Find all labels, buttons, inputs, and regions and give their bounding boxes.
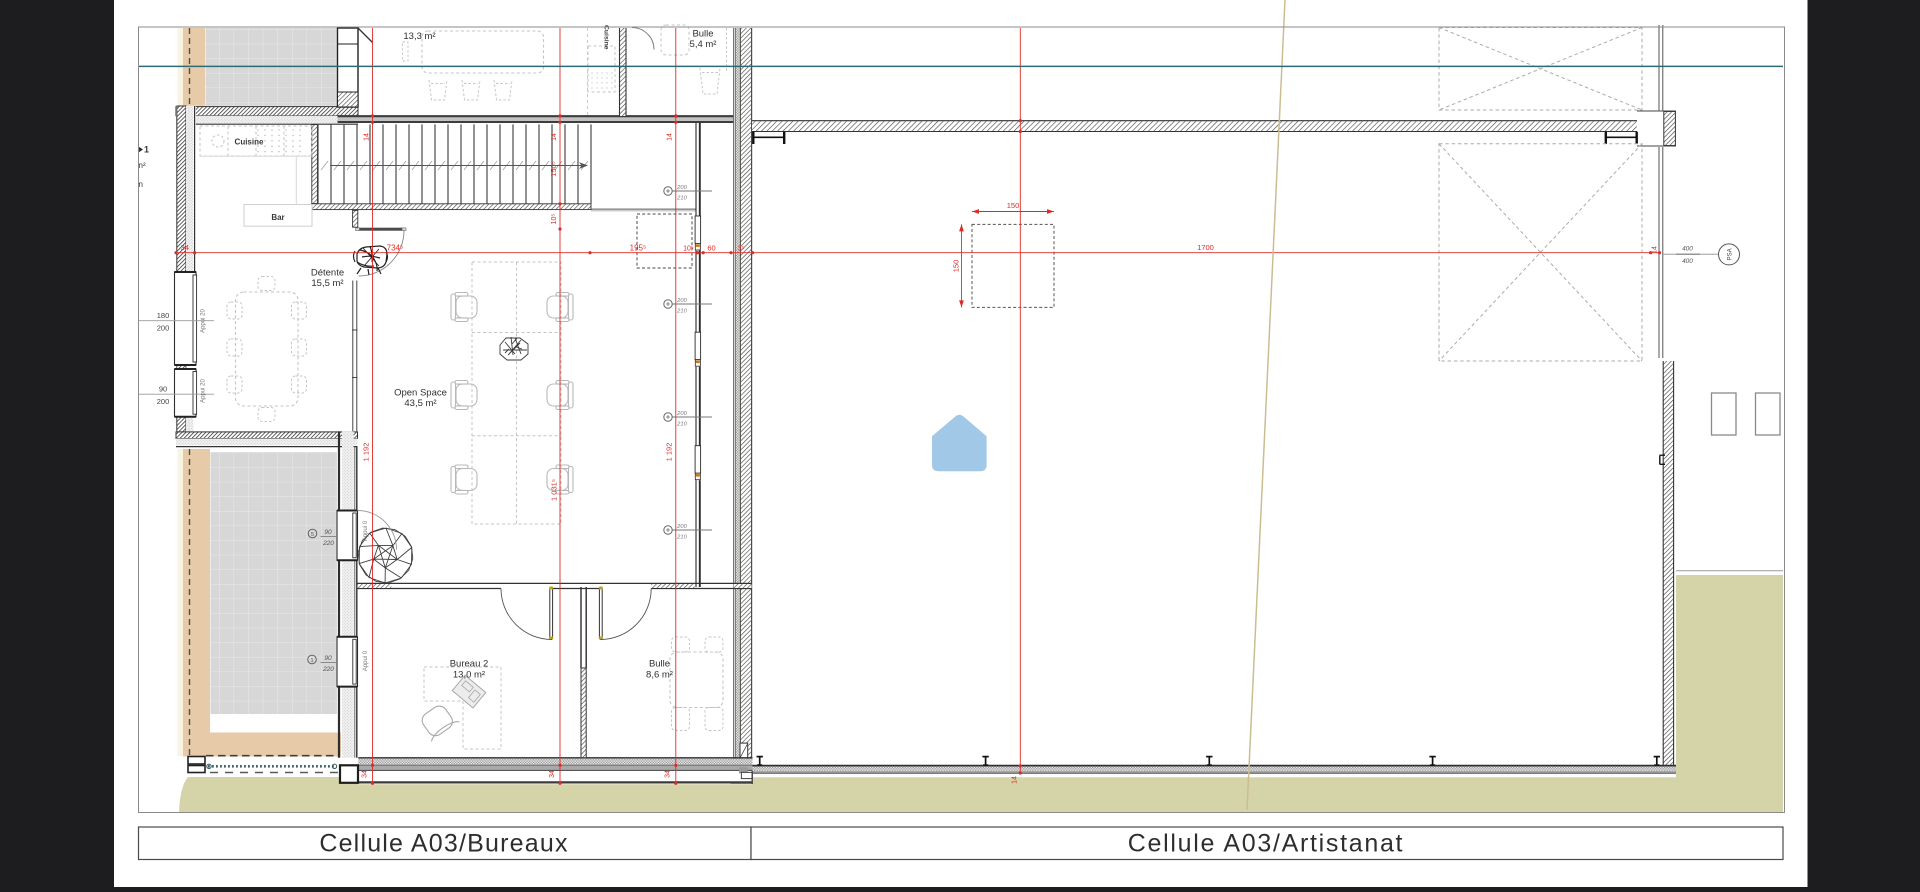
svg-text:n²: n² <box>139 161 146 170</box>
svg-text:34: 34 <box>665 770 672 778</box>
svg-text:Appui 20: Appui 20 <box>201 308 207 332</box>
svg-text:13,0 m²: 13,0 m² <box>453 670 485 681</box>
svg-text:200: 200 <box>676 298 687 304</box>
svg-text:734⁵: 734⁵ <box>387 244 404 253</box>
svg-text:400: 400 <box>1682 258 1693 265</box>
svg-text:1 192: 1 192 <box>362 443 371 462</box>
svg-text:14: 14 <box>1011 776 1018 784</box>
svg-text:1 031⁵: 1 031⁵ <box>550 479 559 501</box>
svg-text:400: 400 <box>1682 246 1693 253</box>
svg-text:220: 220 <box>322 540 334 547</box>
svg-text:200: 200 <box>157 397 170 406</box>
svg-text:Cellule A03/Bureaux: Cellule A03/Bureaux <box>319 830 568 858</box>
svg-text:195⁵: 195⁵ <box>630 244 647 253</box>
svg-text:Cellule A03/Artistanat: Cellule A03/Artistanat <box>1128 830 1404 858</box>
svg-text:5,4 m²: 5,4 m² <box>690 39 717 50</box>
svg-text:15,5 m²: 15,5 m² <box>311 278 343 289</box>
svg-text:34: 34 <box>549 770 556 778</box>
svg-text:34: 34 <box>181 243 189 252</box>
svg-text:14: 14 <box>667 133 674 141</box>
svg-text:3⁵: 3⁵ <box>738 246 745 253</box>
svg-text:150: 150 <box>952 260 961 273</box>
svg-text:1: 1 <box>310 658 313 664</box>
svg-text:90: 90 <box>324 529 332 536</box>
svg-text:Cuisine: Cuisine <box>603 25 610 50</box>
svg-text:200: 200 <box>676 185 687 191</box>
svg-text:8,6 m²: 8,6 m² <box>646 670 673 681</box>
svg-text:43,5 m²: 43,5 m² <box>404 398 436 409</box>
svg-text:13,3 m²: 13,3 m² <box>403 31 435 42</box>
svg-text:Détente: Détente <box>311 268 344 279</box>
svg-text:210: 210 <box>676 309 687 315</box>
svg-text:1: 1 <box>144 145 149 155</box>
svg-text:14: 14 <box>1652 246 1659 254</box>
svg-text:210: 210 <box>676 196 687 202</box>
svg-text:Cuisine: Cuisine <box>235 138 264 147</box>
svg-text:90: 90 <box>324 655 332 662</box>
svg-text:150: 150 <box>1007 201 1020 210</box>
svg-text:90: 90 <box>159 385 167 394</box>
svg-text:Bureau 2: Bureau 2 <box>450 659 489 670</box>
svg-text:Open Space: Open Space <box>394 388 447 399</box>
svg-text:210: 210 <box>676 535 687 541</box>
svg-text:5: 5 <box>311 532 314 538</box>
svg-text:200: 200 <box>157 324 170 333</box>
svg-text:Bulle: Bulle <box>692 29 713 40</box>
svg-text:n: n <box>139 180 143 189</box>
svg-text:Appui 0: Appui 0 <box>363 520 369 541</box>
svg-text:1700: 1700 <box>1197 243 1214 252</box>
svg-text:150⁵: 150⁵ <box>549 161 558 177</box>
svg-text:220: 220 <box>322 666 334 673</box>
svg-text:200: 200 <box>676 524 687 530</box>
svg-text:10⁵: 10⁵ <box>551 214 558 225</box>
svg-text:60: 60 <box>707 244 715 253</box>
svg-text:1 192: 1 192 <box>665 443 674 462</box>
svg-text:180: 180 <box>157 311 170 320</box>
svg-text:10⁵: 10⁵ <box>683 246 694 253</box>
svg-text:PSA: PSA <box>1728 248 1734 260</box>
svg-text:Appui 20: Appui 20 <box>201 378 207 402</box>
svg-text:Bar: Bar <box>271 213 284 222</box>
svg-text:14: 14 <box>364 133 371 141</box>
svg-text:200: 200 <box>676 411 687 417</box>
svg-text:14: 14 <box>551 133 558 141</box>
svg-text:Appui 0: Appui 0 <box>363 650 369 671</box>
svg-text:210: 210 <box>676 422 687 428</box>
svg-text:34: 34 <box>361 770 368 778</box>
svg-text:Bulle: Bulle <box>649 659 670 670</box>
